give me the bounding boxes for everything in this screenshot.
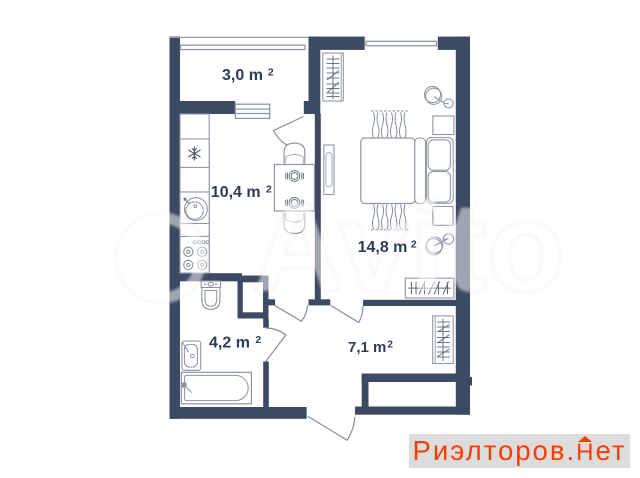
svg-text:4,2 m2: 4,2 m2 xyxy=(209,334,261,352)
svg-text:3,0 m2: 3,0 m2 xyxy=(222,66,274,84)
svg-text:Avito: Avito xyxy=(252,176,565,318)
svg-text:7,1 m2: 7,1 m2 xyxy=(348,339,393,356)
